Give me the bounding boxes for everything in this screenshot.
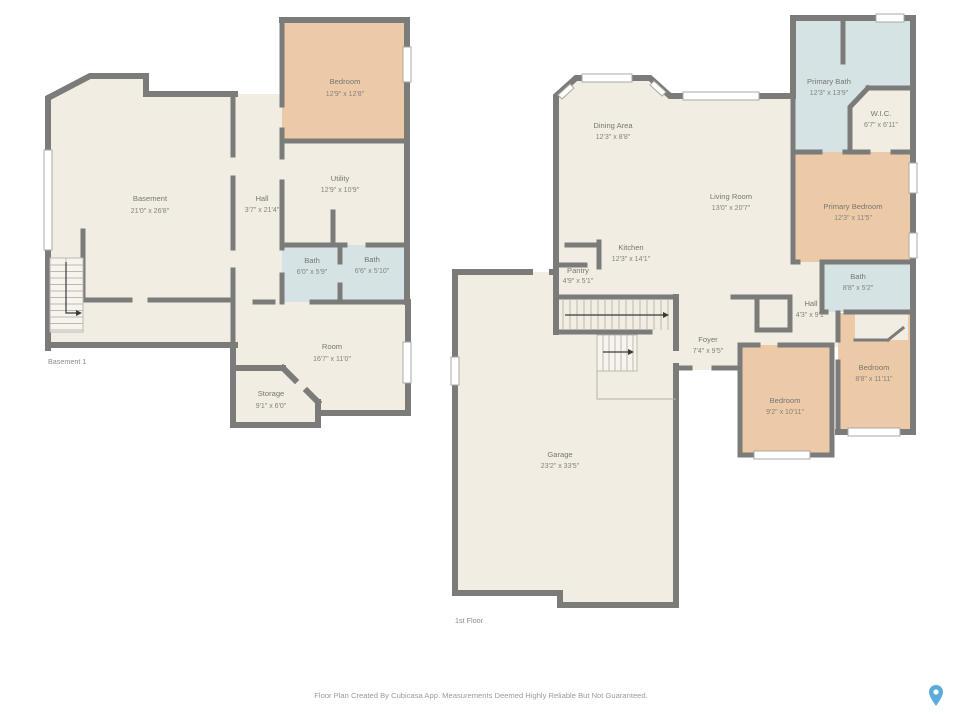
floor-plan-canvas: Basement 21'0" x 26'8" Hall 3'7" x 21'4"… (0, 0, 960, 720)
floor-title-basement: Basement 1 (48, 357, 86, 366)
room-dims-kitchen: 12'3" x 14'1" (612, 256, 651, 263)
room-dims-pantry: 4'9" x 5'1" (563, 278, 594, 285)
window (44, 150, 52, 250)
window (754, 451, 810, 459)
room-dims-bedroom-left: 9'2" x 10'11" (766, 409, 804, 416)
first-floor-plan: Dining Area 12'3" x 8'8" Living Room 13'… (451, 14, 917, 625)
window (582, 74, 632, 82)
room-label-room: Room (322, 342, 342, 351)
room-label-bedroom-left: Bedroom (770, 396, 801, 405)
floor-title-first-floor: 1st Floor (455, 616, 484, 625)
room-dims-bath-floor1: 8'8" x 5'2" (843, 285, 874, 292)
floor-plan-page: Basement 21'0" x 26'8" Hall 3'7" x 21'4"… (0, 0, 960, 720)
room-dims-storage: 9'1" x 6'0" (256, 403, 287, 410)
pin-body (929, 685, 943, 706)
room-dims-room: 16'7" x 11'0" (313, 356, 351, 363)
window (683, 92, 759, 100)
room-dims-bath2-basement: 6'6" x 5'10" (355, 268, 390, 275)
room-label-utility: Utility (331, 174, 350, 183)
window (909, 233, 917, 258)
room-label-storage: Storage (258, 389, 285, 398)
room-label-primary-bath: Primary Bath (807, 77, 851, 86)
room-label-dining: Dining Area (593, 121, 633, 130)
room-dims-bedroom-right: 8'8" x 11'11" (855, 376, 893, 383)
basement-plan: Basement 21'0" x 26'8" Hall 3'7" x 21'4"… (44, 20, 411, 425)
room-dims-hall-basement: 3'7" x 21'4" (245, 207, 280, 214)
room-label-bedroom-basement: Bedroom (330, 77, 361, 86)
room-label-hall-floor1: Hall (804, 299, 817, 308)
room-label-bath2-basement: Bath (364, 255, 380, 264)
room-dims-basement: 21'0" x 26'8" (131, 208, 170, 215)
window (909, 163, 917, 193)
room-label-hall-basement: Hall (255, 194, 268, 203)
room-dims-living: 13'0" x 20'7" (712, 205, 751, 212)
room-label-bedroom-right: Bedroom (859, 363, 890, 372)
room-dims-wic: 6'7" x 6'11" (864, 122, 898, 129)
room-label-garage: Garage (547, 450, 572, 459)
location-pin-icon (929, 685, 943, 706)
window (451, 357, 459, 385)
room-label-primary-bedroom: Primary Bedroom (823, 202, 882, 211)
window (848, 428, 900, 436)
room-dims-foyer: 7'4" x 9'5" (693, 348, 724, 355)
room-label-kitchen: Kitchen (618, 243, 643, 252)
basement-stairs (50, 258, 83, 332)
room-dims-hall-floor1: 4'3" x 9'1" (796, 312, 827, 319)
footer-disclaimer: Floor Plan Created By Cubicasa App. Meas… (314, 691, 647, 700)
room-label-pantry: Pantry (567, 266, 589, 275)
room-dims-utility: 12'9" x 10'9" (321, 187, 360, 194)
room-dims-primary-bath: 12'3" x 13'9" (810, 90, 849, 97)
room-dims-garage: 23'2" x 33'5" (541, 463, 580, 470)
room-label-bath-floor1: Bath (850, 272, 866, 281)
window (876, 14, 904, 22)
room-dims-bedroom-basement: 12'9" x 12'8" (326, 91, 365, 98)
room-dims-bath1-basement: 6'0" x 5'9" (297, 269, 328, 276)
room-dims-dining: 12'3" x 8'8" (596, 134, 631, 141)
pin-center (933, 689, 938, 694)
window (403, 47, 411, 82)
window (403, 342, 411, 383)
room-dims-primary-bedroom: 12'3" x 11'5" (834, 215, 872, 222)
room-label-bath1-basement: Bath (304, 256, 320, 265)
room-label-wic: W.I.C. (871, 109, 892, 118)
room-label-living: Living Room (710, 192, 752, 201)
room-label-foyer: Foyer (698, 335, 718, 344)
bedroom-right-closet-shape (855, 313, 908, 340)
room-label-basement: Basement (133, 194, 168, 203)
